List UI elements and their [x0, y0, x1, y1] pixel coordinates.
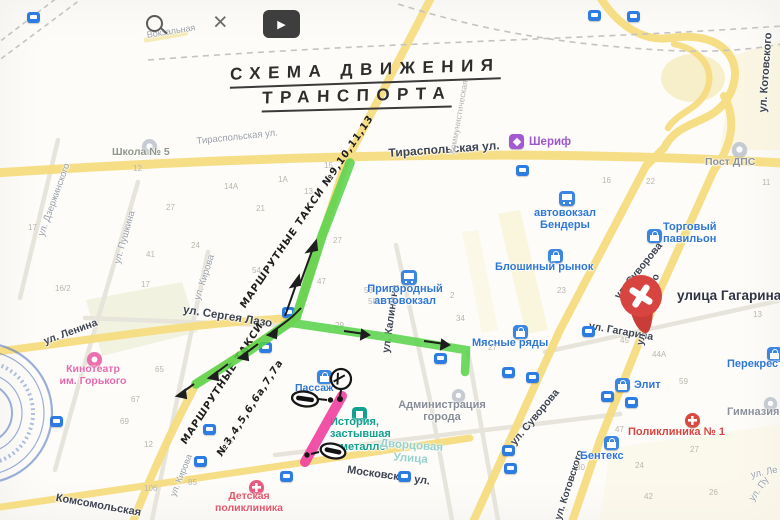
house-number: 12 — [133, 164, 142, 173]
house-number: 67 — [131, 395, 140, 404]
house-number: 22 — [646, 177, 655, 186]
poi-label-myasnye-ryady: Мясные ряды — [472, 337, 548, 349]
transport-stop-icon — [625, 397, 638, 408]
poi-label-elit: Элит — [634, 379, 661, 391]
poi-label-benteks: Бентекс — [580, 450, 624, 462]
transport-stop-icon — [588, 10, 601, 21]
poi-label-torgoviy-pavilion: Торговый павильон — [663, 221, 717, 246]
house-number: 30 — [576, 463, 585, 472]
torgoviy-pavilion-icon — [647, 229, 662, 243]
house-number: 17 — [28, 223, 37, 232]
poi-label-post-dps: Пост ДПС — [705, 157, 755, 169]
street-label: Тираспольская ул. — [388, 138, 500, 160]
transport-stop-icon — [627, 11, 640, 22]
poi-label-school-5: Школа № 5 — [112, 147, 170, 159]
street-label: ул. Ленина — [42, 317, 99, 348]
transport-stop-icon — [601, 391, 614, 402]
transport-stop-icon — [282, 307, 295, 318]
poi-label-bloshiny-rynok: Блошиный рынок — [495, 261, 593, 273]
poi-label-passazh: Пассаж — [295, 383, 333, 395]
house-number: 47 — [317, 277, 326, 286]
house-number: 65 — [155, 365, 164, 374]
transport-stop-icon — [398, 471, 411, 482]
house-number: 45 — [620, 336, 629, 345]
house-number: 27 — [166, 203, 175, 212]
house-number: 14А — [224, 182, 238, 191]
sheriff-icon — [509, 134, 524, 149]
poi-label-perekrestok: Перекресток — [727, 358, 780, 370]
house-number: 1А — [278, 175, 288, 184]
poi-label-administratsia-goroda: Администрация города — [392, 399, 492, 424]
scheme-title-line2: ТРАНСПОРТА — [262, 83, 453, 112]
house-number: 69 — [120, 417, 129, 426]
street-label: ул. Котовского — [757, 32, 775, 113]
house-number: 44А — [652, 350, 666, 359]
house-number: 27 — [333, 236, 342, 245]
poi-label-detskaya-poliklinika: Детская поликлиника — [206, 491, 292, 515]
street-label: Комсомольская — [55, 492, 142, 519]
house-number: 41 — [146, 250, 155, 259]
house-number: 17 — [141, 280, 150, 289]
house-number: 16 — [602, 176, 611, 185]
house-number: 29 — [335, 321, 344, 330]
house-number: 53 — [364, 286, 373, 295]
transport-stop-icon — [27, 12, 40, 23]
transport-stop-icon — [434, 353, 447, 364]
transport-stop-icon — [259, 342, 272, 353]
house-number: 27 — [690, 445, 699, 454]
transport-stop-icon — [502, 445, 515, 456]
transport-stop-icon — [516, 165, 529, 176]
house-number: 26 — [709, 488, 718, 497]
poi-label-dvortsovaya-ulitsa: Дворцовая Улица — [370, 437, 452, 468]
poi-label-sheriff: Шериф — [529, 136, 571, 149]
house-number: 59 — [679, 377, 688, 386]
house-number: 11 — [762, 178, 770, 187]
house-number: 47 — [615, 425, 624, 434]
street-label: ул. Кирова — [168, 453, 194, 498]
transport-stop-icon — [582, 326, 595, 337]
close-icon[interactable]: × — [213, 8, 228, 37]
street-label: ул. Пушкина — [112, 210, 138, 265]
benteks-icon — [604, 436, 619, 450]
street-label: ул. Кирова — [192, 253, 217, 301]
house-number: 85 — [188, 478, 197, 487]
transport-stop-icon — [504, 463, 517, 474]
house-number: 58 — [368, 297, 377, 306]
bus-station-bendery-icon — [559, 191, 575, 206]
hand-drawn-circle-symbol — [331, 369, 351, 402]
house-number: 27 — [488, 343, 497, 352]
house-number: 24 — [635, 461, 644, 470]
post-dps-icon — [732, 142, 747, 157]
house-number: 23 — [557, 286, 566, 295]
transport-stop-icon — [50, 416, 63, 427]
house-number: 34 — [456, 314, 465, 323]
play-button[interactable]: ▶ — [263, 10, 300, 38]
house-number: 21 — [256, 204, 265, 213]
street-label: Тираспольская ул. — [196, 127, 278, 146]
poi-label-poliklinika-1: Поликлиника № 1 — [628, 426, 725, 438]
house-number: 16/2 — [55, 284, 71, 293]
house-number: 13 — [753, 310, 762, 319]
blue-stamp — [0, 343, 52, 483]
poi-label-gimnazia: Гимназия — [727, 406, 779, 418]
elit-icon — [615, 378, 630, 392]
house-number: 106 — [144, 484, 157, 493]
house-number: 42 — [644, 492, 653, 501]
play-icon: ▶ — [277, 18, 285, 31]
transport-stop-icon — [280, 471, 293, 482]
house-number: 12 — [144, 440, 153, 449]
transport-stop-icon — [194, 456, 207, 467]
poi-label-bus-station-bendery: автовокзал Бендеры — [525, 207, 605, 232]
street-label: ул. Дзержинского — [36, 162, 73, 238]
scanned-transport-scheme-map: ВокзальнаяТираспольская ул.Тираспольская… — [0, 0, 780, 520]
handwritten-route-note: МАРШРУТНЫЕ ТАКСИ — [179, 320, 265, 447]
street-label: ул. Пу — [747, 475, 771, 503]
poi-label-kinoteatr-gorkogo: Кинотеатр им. Горького — [53, 364, 133, 388]
search-icon[interactable] — [146, 15, 163, 32]
transport-stop-icon — [502, 367, 515, 378]
street-label: Московская ул. — [346, 464, 431, 488]
street-label: ул. Суворова — [508, 387, 562, 448]
house-number: 2 — [450, 291, 454, 300]
transport-stop-icon — [203, 424, 216, 435]
transport-stop-icon — [526, 372, 539, 383]
pin-label: улица Гагарина — [677, 288, 780, 303]
house-number: 24 — [191, 241, 200, 250]
